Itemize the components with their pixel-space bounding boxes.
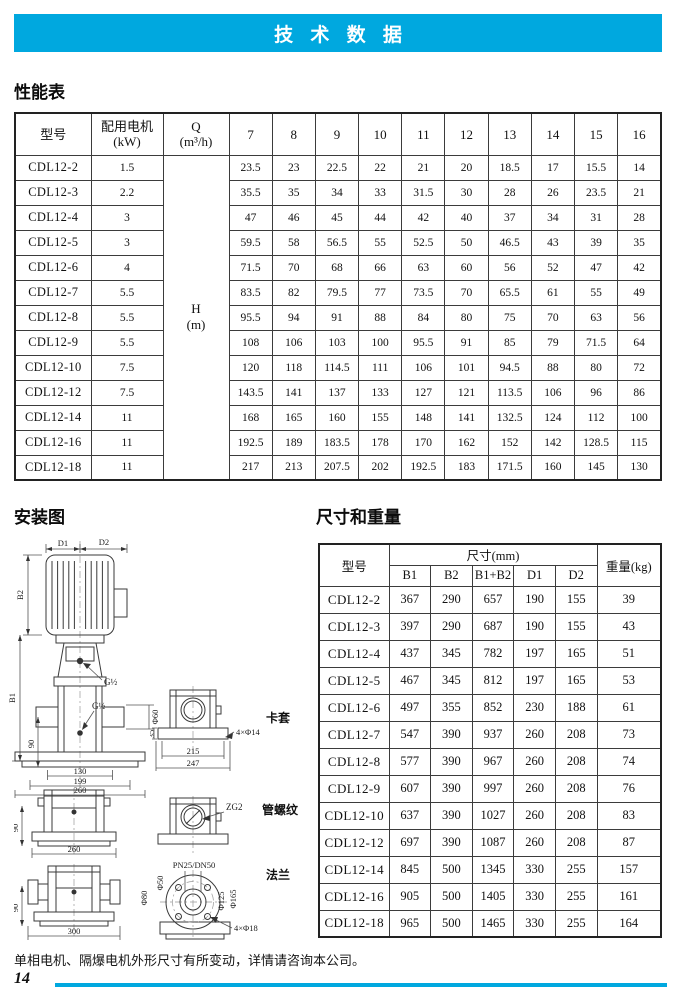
size-b1-cell: 607 xyxy=(389,775,431,802)
size-b2-cell: 500 xyxy=(431,856,473,883)
head-value-cell: 207.5 xyxy=(315,455,358,480)
dim-label-130: 130 xyxy=(74,766,87,776)
size-b2-cell: 345 xyxy=(431,640,473,667)
head-value-cell: 71.5 xyxy=(229,255,272,280)
head-value-cell: 65.5 xyxy=(488,280,531,305)
head-value-cell: 35 xyxy=(272,180,315,205)
dimensions-weight-table: 型号 尺寸(mm) 重量(kg) B1 B2 B1+B2 D1 D2 CDL12… xyxy=(318,543,662,938)
head-value-cell: 152 xyxy=(488,430,531,455)
motor-power-cell: 1.5 xyxy=(91,155,163,180)
head-value-cell: 145 xyxy=(575,455,618,480)
performance-section-title: 性能表 xyxy=(14,78,65,103)
model-cell: CDL12-8 xyxy=(15,305,91,330)
size-d2-cell: 208 xyxy=(555,775,597,802)
dim-label-dia165: Φ165 xyxy=(228,890,238,909)
size-d2-cell: 165 xyxy=(555,667,597,694)
head-value-cell: 86 xyxy=(618,380,661,405)
performance-row: CDL12-10 7.5 120 118 114.5 111 106 101 9… xyxy=(15,355,661,380)
connection-label-flange: 法兰 xyxy=(266,866,290,883)
head-value-cell: 47 xyxy=(575,255,618,280)
weight-cell: 164 xyxy=(597,910,661,937)
performance-header-row: 型号 配用电机(kW) Q(m³/h) 7 8 9 10 11 12 13 14… xyxy=(15,113,661,155)
head-value-cell: 178 xyxy=(359,430,402,455)
dim-label-zg2: ZG2 xyxy=(226,802,243,812)
head-value-cell: 50 xyxy=(445,230,488,255)
model-cell: CDL12-18 xyxy=(15,455,91,480)
size-d2-cell: 155 xyxy=(555,613,597,640)
dim-label-b2: B2 xyxy=(15,590,25,600)
weight-cell: 73 xyxy=(597,721,661,748)
head-value-cell: 28 xyxy=(618,205,661,230)
page-header-bar: 技 术 数 据 xyxy=(14,14,662,52)
head-value-cell: 130 xyxy=(618,455,661,480)
dim-label-4x14-holes: 4×Φ14 xyxy=(236,727,261,737)
head-value-cell: 49 xyxy=(618,280,661,305)
size-d1-cell: 260 xyxy=(514,721,556,748)
size-col-header: D1 xyxy=(514,565,556,586)
head-value-cell: 120 xyxy=(229,355,272,380)
flow-col-header: 12 xyxy=(445,113,488,155)
size-d2-cell: 155 xyxy=(555,586,597,613)
size-d2-cell: 165 xyxy=(555,640,597,667)
head-value-cell: 42 xyxy=(618,255,661,280)
size-d1-cell: 230 xyxy=(514,694,556,721)
head-value-cell: 70 xyxy=(445,280,488,305)
size-d2-cell: 208 xyxy=(555,802,597,829)
footer-note: 单相电机、隔爆电机外形尺寸有所变动，详情请咨询本公司。 xyxy=(14,950,365,969)
head-value-cell: 63 xyxy=(575,305,618,330)
performance-row: CDL12-16 11 192.5 189 183.5 178 170 162 … xyxy=(15,430,661,455)
size-b2-cell: 390 xyxy=(431,802,473,829)
head-value-cell: 55 xyxy=(575,280,618,305)
size-d2-cell: 208 xyxy=(555,748,597,775)
dim-label-b1: B1 xyxy=(8,693,17,703)
dim-label-35: 35 xyxy=(150,730,156,739)
size-b1b2-cell: 997 xyxy=(472,775,514,802)
page-number: 14 xyxy=(14,970,30,988)
performance-table: 型号 配用电机(kW) Q(m³/h) 7 8 9 10 11 12 13 14… xyxy=(14,112,662,481)
flow-col-header: 14 xyxy=(531,113,574,155)
head-value-cell: 66 xyxy=(359,255,402,280)
head-value-cell: 22 xyxy=(359,155,402,180)
head-value-cell: 35.5 xyxy=(229,180,272,205)
size-d1-cell: 190 xyxy=(514,586,556,613)
head-value-cell: 56 xyxy=(488,255,531,280)
size-b1b2-cell: 782 xyxy=(472,640,514,667)
size-b1b2-cell: 937 xyxy=(472,721,514,748)
size-d1-cell: 197 xyxy=(514,667,556,694)
head-value-cell: 124 xyxy=(531,405,574,430)
motor-power-cell: 3 xyxy=(91,205,163,230)
head-value-cell: 137 xyxy=(315,380,358,405)
head-value-cell: 37 xyxy=(488,205,531,230)
weight-cell: 76 xyxy=(597,775,661,802)
size-b1b2-cell: 967 xyxy=(472,748,514,775)
head-value-cell: 106 xyxy=(531,380,574,405)
dim-label-260-base1: 260 xyxy=(68,844,81,854)
size-b1b2-cell: 1087 xyxy=(472,829,514,856)
head-value-cell: 192.5 xyxy=(402,455,445,480)
head-value-cell: 82 xyxy=(272,280,315,305)
head-value-cell: 59.5 xyxy=(229,230,272,255)
head-value-cell: 39 xyxy=(575,230,618,255)
size-b2-cell: 390 xyxy=(431,748,473,775)
head-value-cell: 61 xyxy=(531,280,574,305)
page-title: 技 术 数 据 xyxy=(274,20,408,47)
model-cell: CDL12-3 xyxy=(15,180,91,205)
dimensions-row: CDL12-10 637 390 1027 260 208 83 xyxy=(319,802,661,829)
head-value-cell: 34 xyxy=(315,180,358,205)
size-d1-cell: 260 xyxy=(514,829,556,856)
head-value-cell: 128.5 xyxy=(575,430,618,455)
head-value-cell: 111 xyxy=(359,355,402,380)
head-value-cell: 56.5 xyxy=(315,230,358,255)
head-value-cell: 171.5 xyxy=(488,455,531,480)
head-value-cell: 170 xyxy=(402,430,445,455)
model-cell: CDL12-14 xyxy=(319,856,389,883)
weight-cell: 51 xyxy=(597,640,661,667)
model-cell: CDL12-10 xyxy=(15,355,91,380)
size-b1-cell: 467 xyxy=(389,667,431,694)
performance-row: CDL12-8 5.5 95.5 94 91 88 84 80 75 70 63… xyxy=(15,305,661,330)
head-value-cell: 141 xyxy=(445,405,488,430)
dimensions-row: CDL12-7 547 390 937 260 208 73 xyxy=(319,721,661,748)
head-value-cell: 71.5 xyxy=(575,330,618,355)
head-value-cell: 40 xyxy=(445,205,488,230)
head-value-cell: 52.5 xyxy=(402,230,445,255)
head-value-cell: 96 xyxy=(575,380,618,405)
head-value-cell: 23 xyxy=(272,155,315,180)
motor-power-cell: 3 xyxy=(91,230,163,255)
model-cell: CDL12-18 xyxy=(319,910,389,937)
flow-col-header: 9 xyxy=(315,113,358,155)
head-value-cell: 15.5 xyxy=(575,155,618,180)
model-cell: CDL12-9 xyxy=(319,775,389,802)
head-value-cell: 43 xyxy=(531,230,574,255)
head-value-cell: 202 xyxy=(359,455,402,480)
performance-row: CDL12-18 11 217 213 207.5 202 192.5 183 … xyxy=(15,455,661,480)
dimensions-row: CDL12-8 577 390 967 260 208 74 xyxy=(319,748,661,775)
head-value-cell: 155 xyxy=(359,405,402,430)
weight-cell: 39 xyxy=(597,586,661,613)
head-value-cell: 101 xyxy=(445,355,488,380)
dim-label-pn25-dn50: PN25/DN50 xyxy=(173,860,216,870)
size-d2-cell: 255 xyxy=(555,856,597,883)
head-value-cell: 121 xyxy=(445,380,488,405)
head-value-cell: 23.5 xyxy=(575,180,618,205)
datasheet-page: 技 术 数 据 性能表 型号 配用电机(kW) Q(m³/h) 7 8 9 10… xyxy=(0,0,676,1000)
col-header-motor-power: 配用电机(kW) xyxy=(91,113,163,155)
size-d1-cell: 330 xyxy=(514,910,556,937)
model-cell: CDL12-6 xyxy=(15,255,91,280)
head-value-cell: 95.5 xyxy=(402,330,445,355)
motor-power-cell: 5.5 xyxy=(91,330,163,355)
head-value-cell: 31 xyxy=(575,205,618,230)
head-value-cell: 31.5 xyxy=(402,180,445,205)
head-value-cell: 127 xyxy=(402,380,445,405)
head-value-cell: 26 xyxy=(531,180,574,205)
model-cell: CDL12-7 xyxy=(15,280,91,305)
size-b1-cell: 547 xyxy=(389,721,431,748)
dimensions-row: CDL12-16 905 500 1405 330 255 161 xyxy=(319,883,661,910)
pump-base-260-drawing: 90 260 xyxy=(14,788,144,860)
head-value-cell: 56 xyxy=(618,305,661,330)
dim-label-90-base1: 90 xyxy=(14,824,20,833)
size-d1-cell: 190 xyxy=(514,613,556,640)
weight-cell: 161 xyxy=(597,883,661,910)
dimensions-row: CDL12-3 397 290 687 190 155 43 xyxy=(319,613,661,640)
weight-cell: 157 xyxy=(597,856,661,883)
head-value-cell: 118 xyxy=(272,355,315,380)
head-value-cell: 52 xyxy=(531,255,574,280)
dimensions-row: CDL12-12 697 390 1087 260 208 87 xyxy=(319,829,661,856)
head-value-cell: 189 xyxy=(272,430,315,455)
head-value-cell: 106 xyxy=(402,355,445,380)
size-b1b2-cell: 657 xyxy=(472,586,514,613)
clamp-connection-drawing: 35 215 247 4×Φ14 xyxy=(150,684,315,780)
model-cell: CDL12-7 xyxy=(319,721,389,748)
head-value-cell: 108 xyxy=(229,330,272,355)
size-d2-cell: 188 xyxy=(555,694,597,721)
head-value-cell: 79 xyxy=(531,330,574,355)
head-value-cell: 14 xyxy=(618,155,661,180)
head-value-cell: 83.5 xyxy=(229,280,272,305)
size-d2-cell: 255 xyxy=(555,910,597,937)
head-value-cell: 30 xyxy=(445,180,488,205)
head-value-cell: 34 xyxy=(531,205,574,230)
head-value-cell: 113.5 xyxy=(488,380,531,405)
head-value-cell: 22.5 xyxy=(315,155,358,180)
size-b2-cell: 355 xyxy=(431,694,473,721)
dimensions-header-row-1: 型号 尺寸(mm) 重量(kg) xyxy=(319,544,661,565)
head-value-cell: 192.5 xyxy=(229,430,272,455)
size-b2-cell: 390 xyxy=(431,721,473,748)
model-cell: CDL12-3 xyxy=(319,613,389,640)
model-cell: CDL12-2 xyxy=(319,586,389,613)
head-value-cell: 42 xyxy=(402,205,445,230)
size-b1-cell: 367 xyxy=(389,586,431,613)
head-value-cell: 68 xyxy=(315,255,358,280)
head-value-cell: 75 xyxy=(488,305,531,330)
model-cell: CDL12-12 xyxy=(15,380,91,405)
head-value-cell: 213 xyxy=(272,455,315,480)
head-value-cell: 183 xyxy=(445,455,488,480)
head-value-cell: 148 xyxy=(402,405,445,430)
footer-rule xyxy=(55,983,667,987)
head-value-cell: 142 xyxy=(531,430,574,455)
flow-col-header: 10 xyxy=(359,113,402,155)
size-b1-cell: 845 xyxy=(389,856,431,883)
head-value-cell: 17 xyxy=(531,155,574,180)
performance-row: CDL12-14 11 168 165 160 155 148 141 132.… xyxy=(15,405,661,430)
col-header-flow-q: Q(m³/h) xyxy=(163,113,229,155)
col-header-weight: 重量(kg) xyxy=(597,544,661,586)
size-d2-cell: 208 xyxy=(555,721,597,748)
head-value-cell: 60 xyxy=(445,255,488,280)
size-col-header: D2 xyxy=(555,565,597,586)
size-b1-cell: 697 xyxy=(389,829,431,856)
size-b1-cell: 437 xyxy=(389,640,431,667)
head-value-cell: 70 xyxy=(272,255,315,280)
head-value-cell: 115 xyxy=(618,430,661,455)
flow-col-header: 13 xyxy=(488,113,531,155)
motor-power-cell: 2.2 xyxy=(91,180,163,205)
model-cell: CDL12-10 xyxy=(319,802,389,829)
motor-power-cell: 7.5 xyxy=(91,355,163,380)
size-b2-cell: 290 xyxy=(431,586,473,613)
head-value-cell: 23.5 xyxy=(229,155,272,180)
head-value-cell: 21 xyxy=(402,155,445,180)
size-d1-cell: 260 xyxy=(514,748,556,775)
size-b1-cell: 965 xyxy=(389,910,431,937)
head-value-cell: 33 xyxy=(359,180,402,205)
size-col-header: B1 xyxy=(389,565,431,586)
head-value-cell: 80 xyxy=(445,305,488,330)
head-value-cell: 84 xyxy=(402,305,445,330)
size-b2-cell: 290 xyxy=(431,613,473,640)
connection-label-clamp: 卡套 xyxy=(266,709,290,726)
head-value-cell: 168 xyxy=(229,405,272,430)
model-cell: CDL12-5 xyxy=(319,667,389,694)
size-col-header: B2 xyxy=(431,565,473,586)
head-value-cell: 91 xyxy=(315,305,358,330)
size-col-header: B1+B2 xyxy=(472,565,514,586)
head-value-cell: 106 xyxy=(272,330,315,355)
pump-base-300-drawing: 90 300 xyxy=(14,864,149,944)
dim-label-dia125: Φ125 xyxy=(216,892,226,911)
head-unit-cell: H(m) xyxy=(163,155,229,480)
size-b2-cell: 500 xyxy=(431,883,473,910)
size-d1-cell: 330 xyxy=(514,856,556,883)
size-d2-cell: 208 xyxy=(555,829,597,856)
installation-section-title: 安装图 xyxy=(14,503,65,528)
size-b1b2-cell: 1465 xyxy=(472,910,514,937)
head-value-cell: 35 xyxy=(618,230,661,255)
model-cell: CDL12-5 xyxy=(15,230,91,255)
model-cell: CDL12-2 xyxy=(15,155,91,180)
head-value-cell: 45 xyxy=(315,205,358,230)
size-b1-cell: 497 xyxy=(389,694,431,721)
head-value-cell: 46.5 xyxy=(488,230,531,255)
head-value-cell: 114.5 xyxy=(315,355,358,380)
size-b1-cell: 577 xyxy=(389,748,431,775)
performance-row: CDL12-4 3 47 46 45 44 42 40 37 34 31 28 xyxy=(15,205,661,230)
size-d2-cell: 255 xyxy=(555,883,597,910)
col-header-model: 型号 xyxy=(319,544,389,586)
head-value-cell: 18.5 xyxy=(488,155,531,180)
head-value-cell: 143.5 xyxy=(229,380,272,405)
head-value-cell: 162 xyxy=(445,430,488,455)
weight-cell: 83 xyxy=(597,802,661,829)
head-value-cell: 88 xyxy=(531,355,574,380)
flow-col-header: 7 xyxy=(229,113,272,155)
dim-label-4x18-holes: 4×Φ18 xyxy=(234,923,258,933)
head-value-cell: 132.5 xyxy=(488,405,531,430)
size-d1-cell: 197 xyxy=(514,640,556,667)
head-value-cell: 55 xyxy=(359,230,402,255)
head-value-cell: 70 xyxy=(531,305,574,330)
motor-power-cell: 5.5 xyxy=(91,280,163,305)
dim-label-dia80: Φ80 xyxy=(139,891,149,906)
size-b2-cell: 500 xyxy=(431,910,473,937)
size-b1b2-cell: 1345 xyxy=(472,856,514,883)
performance-row: CDL12-12 7.5 143.5 141 137 133 127 121 1… xyxy=(15,380,661,405)
head-value-cell: 183.5 xyxy=(315,430,358,455)
size-b2-cell: 345 xyxy=(431,667,473,694)
model-cell: CDL12-16 xyxy=(15,430,91,455)
col-header-model: 型号 xyxy=(15,113,91,155)
size-b1b2-cell: 852 xyxy=(472,694,514,721)
size-b1b2-cell: 687 xyxy=(472,613,514,640)
head-value-cell: 79.5 xyxy=(315,280,358,305)
size-b1b2-cell: 1405 xyxy=(472,883,514,910)
connection-label-pipe-thread: 管螺纹 xyxy=(262,801,298,818)
head-value-cell: 46 xyxy=(272,205,315,230)
head-value-cell: 47 xyxy=(229,205,272,230)
performance-row: CDL12-9 5.5 108 106 103 100 95.5 91 85 7… xyxy=(15,330,661,355)
model-cell: CDL12-6 xyxy=(319,694,389,721)
head-value-cell: 160 xyxy=(315,405,358,430)
head-value-cell: 141 xyxy=(272,380,315,405)
head-value-cell: 21 xyxy=(618,180,661,205)
head-value-cell: 91 xyxy=(445,330,488,355)
weight-cell: 43 xyxy=(597,613,661,640)
head-value-cell: 58 xyxy=(272,230,315,255)
dimensions-row: CDL12-9 607 390 997 260 208 76 xyxy=(319,775,661,802)
weight-cell: 87 xyxy=(597,829,661,856)
performance-row: CDL12-2 1.5 H(m) 23.5 23 22.5 22 21 20 1… xyxy=(15,155,661,180)
head-value-cell: 112 xyxy=(575,405,618,430)
size-d1-cell: 330 xyxy=(514,883,556,910)
head-value-cell: 64 xyxy=(618,330,661,355)
head-value-cell: 77 xyxy=(359,280,402,305)
dim-label-215: 215 xyxy=(187,746,200,756)
head-value-cell: 72 xyxy=(618,355,661,380)
dimensions-row: CDL12-5 467 345 812 197 165 53 xyxy=(319,667,661,694)
head-value-cell: 95.5 xyxy=(229,305,272,330)
performance-row: CDL12-5 3 59.5 58 56.5 55 52.5 50 46.5 4… xyxy=(15,230,661,255)
motor-power-cell: 11 xyxy=(91,405,163,430)
performance-row: CDL12-3 2.2 35.5 35 34 33 31.5 30 28 26 … xyxy=(15,180,661,205)
dim-label-dia50: Φ50 xyxy=(155,876,165,891)
size-b1-cell: 637 xyxy=(389,802,431,829)
head-value-cell: 133 xyxy=(359,380,402,405)
dim-label-g-half-lower: G½ xyxy=(92,701,105,711)
motor-power-cell: 11 xyxy=(91,455,163,480)
size-b1-cell: 905 xyxy=(389,883,431,910)
head-value-cell: 73.5 xyxy=(402,280,445,305)
size-b1b2-cell: 812 xyxy=(472,667,514,694)
model-cell: CDL12-4 xyxy=(319,640,389,667)
head-value-cell: 100 xyxy=(618,405,661,430)
head-value-cell: 160 xyxy=(531,455,574,480)
dimensions-row: CDL12-4 437 345 782 197 165 51 xyxy=(319,640,661,667)
model-cell: CDL12-9 xyxy=(15,330,91,355)
head-value-cell: 94 xyxy=(272,305,315,330)
dimensions-row: CDL12-2 367 290 657 190 155 39 xyxy=(319,586,661,613)
weight-cell: 61 xyxy=(597,694,661,721)
head-value-cell: 94.5 xyxy=(488,355,531,380)
model-cell: CDL12-8 xyxy=(319,748,389,775)
head-value-cell: 20 xyxy=(445,155,488,180)
dim-label-90-base2: 90 xyxy=(14,904,20,913)
performance-row: CDL12-7 5.5 83.5 82 79.5 77 73.5 70 65.5… xyxy=(15,280,661,305)
dim-label-d1: D1 xyxy=(58,538,68,548)
dimensions-row: CDL12-14 845 500 1345 330 255 157 xyxy=(319,856,661,883)
dimensions-section-title: 尺寸和重量 xyxy=(316,503,401,528)
head-value-cell: 28 xyxy=(488,180,531,205)
head-value-cell: 80 xyxy=(575,355,618,380)
